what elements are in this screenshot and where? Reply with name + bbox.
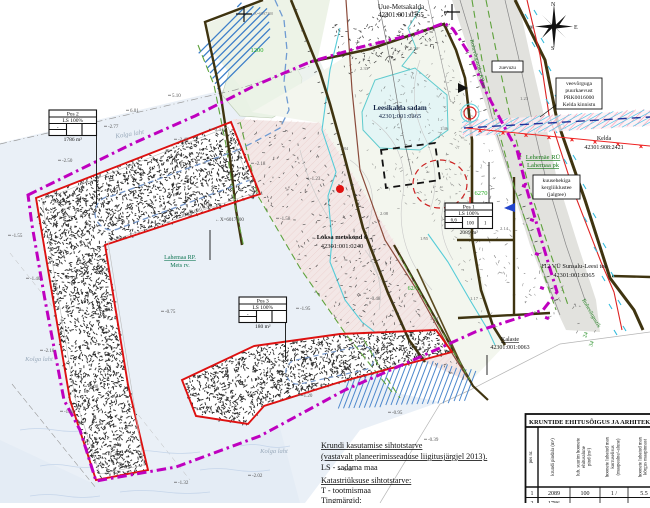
svg-text:LS 100%: LS 100%: [62, 118, 83, 124]
svg-text:hoonete lubatud max: hoonete lubatud max: [638, 436, 643, 477]
svg-text:180 m²: 180 m²: [255, 324, 271, 330]
svg-text:KRUNTIDE EHITUSÕIGUS JA ARHITE: KRUNTIDE EHITUSÕIGUS JA ARHITEKTUURINÕUD…: [529, 418, 650, 426]
svg-text:Kalaste: Kalaste: [501, 337, 519, 343]
svg-text:Mets rv.: Mets rv.: [170, 263, 190, 269]
svg-text:kuusehekiga: kuusehekiga: [543, 178, 571, 184]
svg-text:S: S: [551, 46, 554, 52]
svg-text:-1.95: -1.95: [300, 307, 311, 312]
svg-text:-1.32: -1.32: [178, 481, 189, 486]
svg-text:-1.23: -1.23: [310, 177, 321, 182]
svg-text:-1.55: -1.55: [12, 234, 23, 239]
svg-text:0.72: 0.72: [410, 46, 419, 51]
svg-text:1.46: 1.46: [440, 126, 449, 131]
svg-text:6,6: 6,6: [451, 218, 458, 223]
svg-text:Lehemäe RÜ: Lehemäe RÜ: [526, 154, 561, 161]
svg-text:42301:001:0365: 42301:001:0365: [378, 11, 424, 19]
svg-text:1.55: 1.55: [420, 236, 429, 241]
svg-text:krundi pindala (m²): krundi pindala (m²): [550, 438, 556, 476]
svg-text:-0.95: -0.95: [392, 411, 403, 416]
svg-text:62/0: 62/0: [408, 286, 419, 292]
svg-text:PRK0016000: PRK0016000: [564, 95, 595, 101]
svg-text:-0.48: -0.48: [370, 297, 381, 302]
svg-text:-1.20: -1.20: [302, 394, 313, 399]
svg-text:6.01: 6.01: [130, 109, 139, 114]
svg-text:1786 m²: 1786 m²: [64, 137, 83, 143]
svg-text:pos nr.: pos nr.: [529, 451, 534, 464]
svg-text:-1.40: -1.40: [30, 277, 41, 282]
svg-text:N: N: [551, 2, 556, 8]
svg-text:lub. suurim hoonete: lub. suurim hoonete: [577, 438, 582, 476]
svg-text:-0.41: -0.41: [213, 128, 224, 133]
svg-text:Pos 3: Pos 3: [257, 299, 269, 305]
svg-text:2.33: 2.33: [360, 66, 369, 71]
svg-text:korruselisus: korruselisus: [611, 445, 616, 468]
svg-text:1: 1: [531, 491, 534, 497]
svg-text:-2.10: -2.10: [44, 349, 55, 354]
svg-text:100: 100: [466, 222, 474, 227]
svg-text:-1.44: -1.44: [64, 410, 75, 415]
svg-text:-2.08: -2.08: [88, 385, 99, 390]
svg-text:5.5: 5.5: [640, 491, 648, 497]
svg-text:W: W: [528, 25, 534, 31]
svg-text:3.44: 3.44: [430, 316, 439, 321]
svg-text:42301:001:0063: 42301:001:0063: [490, 345, 529, 351]
svg-text:112 VÜ Sunsalu-Leesi tee: 112 VÜ Sunsalu-Leesi tee: [541, 263, 607, 270]
svg-text:LS 100%: LS 100%: [252, 305, 273, 311]
svg-text:Uue-Metsakalda: Uue-Metsakalda: [378, 3, 425, 11]
svg-text:(jalgtee): (jalgtee): [547, 191, 566, 198]
svg-text:LS 100%: LS 100%: [458, 211, 479, 217]
svg-text:Kelda kinnistu: Kelda kinnistu: [563, 102, 596, 108]
svg-text:Loksa metskond 6: Loksa metskond 6: [317, 234, 368, 241]
svg-text:1200: 1200: [251, 47, 264, 54]
svg-text:(vastavalt planeerimisseaduse: (vastavalt planeerimisseaduse liigitusjä…: [321, 452, 487, 461]
svg-text:Lahemaa RP.: Lahemaa RP.: [164, 255, 196, 261]
svg-text:ehitusalune: ehitusalune: [582, 446, 587, 468]
svg-text:-1.20: -1.20: [108, 453, 119, 458]
svg-text:X=6597200: X=6597200: [254, 11, 273, 16]
svg-text:veevõrguga: veevõrguga: [566, 81, 593, 87]
svg-text:Krundi kasutamise sihtotstarve: Krundi kasutamise sihtotstarve: [321, 441, 423, 450]
svg-text:-1.58: -1.58: [280, 217, 291, 222]
svg-text:Tingmärgid:: Tingmärgid:: [321, 496, 362, 503]
svg-text:E: E: [574, 25, 578, 31]
svg-text:kõrgus maapinnast: kõrgus maapinnast: [644, 438, 649, 475]
svg-text:-2.50: -2.50: [62, 159, 73, 164]
svg-text:1.23: 1.23: [520, 96, 529, 101]
svg-text:-2.43: -2.43: [178, 138, 189, 143]
svg-text:←X=6017100: ←X=6017100: [215, 218, 244, 223]
svg-text:-2.77: -2.77: [108, 125, 119, 130]
svg-text:LS - sadama maa: LS - sadama maa: [321, 463, 378, 472]
svg-text:-0.39: -0.39: [428, 438, 439, 443]
svg-text:1.84: 1.84: [340, 146, 349, 151]
svg-text:Pos 1: Pos 1: [463, 205, 475, 211]
svg-text:puurkaevust: puurkaevust: [565, 88, 593, 94]
svg-text:2089: 2089: [548, 491, 560, 497]
svg-text:1.17: 1.17: [470, 296, 479, 301]
svg-text:-2.18: -2.18: [255, 162, 266, 167]
svg-text:2089 m²: 2089 m²: [460, 230, 479, 236]
svg-text:hoonete lubatud max: hoonete lubatud max: [606, 436, 611, 477]
svg-text:(maapealne/-alune): (maapealne/-alune): [616, 438, 621, 475]
svg-text:Pos 2: Pos 2: [67, 112, 79, 118]
svg-text:kergliiklustee: kergliiklustee: [541, 185, 572, 191]
svg-text:Kolga laht: Kolga laht: [259, 448, 288, 455]
svg-text:pind (m²): pind (m²): [586, 448, 592, 466]
svg-text:zuevuzu: zuevuzu: [499, 66, 516, 71]
svg-text:Kelda: Kelda: [597, 136, 612, 142]
svg-text:1 /: 1 /: [611, 491, 618, 497]
svg-text:100: 100: [581, 491, 590, 497]
svg-text:Lahemaa pk: Lahemaa pk: [527, 162, 560, 169]
svg-text:Leesikalda sadam: Leesikalda sadam: [373, 104, 427, 112]
svg-text:42301:001:0365: 42301:001:0365: [553, 272, 594, 279]
svg-text:2.14: 2.14: [500, 226, 509, 231]
svg-text:Katastriüksuse sihtotstarve:: Katastriüksuse sihtotstarve:: [321, 476, 411, 485]
svg-text:2.08: 2.08: [380, 211, 389, 216]
svg-text:-0.75: -0.75: [165, 310, 176, 315]
svg-text:T - tootmismaa: T - tootmismaa: [321, 486, 371, 495]
svg-text:5.10: 5.10: [172, 94, 181, 99]
svg-text:42301:908:2421: 42301:908:2421: [584, 145, 623, 151]
svg-text:42301:001:0240: 42301:001:0240: [321, 243, 364, 250]
svg-text:Kolga laht: Kolga laht: [24, 356, 53, 363]
svg-text:6270: 6270: [475, 190, 488, 197]
svg-text:42301:001:0365: 42301:001:0365: [379, 113, 422, 120]
svg-text:-2.02: -2.02: [252, 474, 263, 479]
